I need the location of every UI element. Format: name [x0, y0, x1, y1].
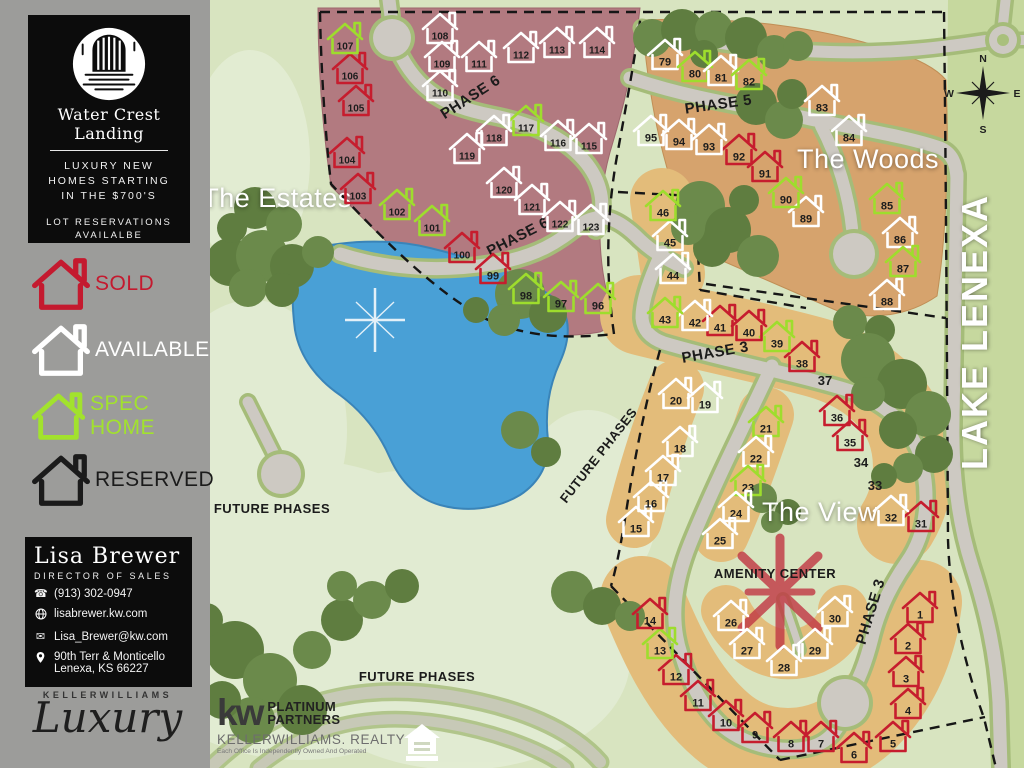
tagline-line: IN THE $700'S — [28, 189, 190, 204]
kw-luxury-script: Luxury — [15, 696, 200, 740]
svg-text:115: 115 — [581, 142, 598, 153]
road-label: FUTURE PHASES — [359, 669, 475, 684]
svg-text:112: 112 — [513, 51, 530, 62]
legend-house-icon-reserved — [30, 452, 92, 508]
info-sidebar: Water Crest Landing LUXURY NEW HOMES STA… — [0, 0, 210, 768]
legend-item-sold: SOLD — [30, 256, 154, 312]
compass-w: W — [944, 88, 954, 100]
legend-item-reserved: RESERVED — [30, 452, 214, 508]
svg-text:25: 25 — [714, 536, 726, 548]
kw-platinum-logo: kw PLATINUM PARTNERS KELLERWILLIAMS. REA… — [217, 696, 405, 755]
partners-line: PARTNERS — [267, 713, 340, 726]
svg-text:46: 46 — [657, 208, 669, 220]
svg-text:43: 43 — [659, 315, 671, 327]
kw-luxury-logo: KELLERWILLIAMS Luxury — [15, 690, 200, 740]
svg-text:113: 113 — [549, 46, 566, 57]
svg-text:80: 80 — [689, 69, 701, 81]
svg-text:104: 104 — [339, 156, 356, 167]
svg-text:99: 99 — [487, 271, 499, 283]
svg-text:9: 9 — [752, 730, 758, 742]
svg-text:122: 122 — [552, 220, 569, 231]
legend-item-available: AVAILABLE — [30, 322, 210, 378]
area-label: The Estates — [202, 183, 352, 213]
svg-text:8: 8 — [788, 739, 794, 751]
svg-text:13: 13 — [654, 646, 666, 658]
svg-text:114: 114 — [589, 46, 606, 57]
svg-text:111: 111 — [471, 60, 487, 71]
svg-text:36: 36 — [831, 413, 843, 425]
legend-label: SOLD — [95, 272, 154, 296]
svg-text:38: 38 — [796, 359, 808, 371]
svg-text:1: 1 — [917, 610, 923, 622]
lot-37: 37 — [818, 373, 832, 388]
svg-text:11: 11 — [692, 698, 704, 710]
svg-text:26: 26 — [725, 618, 737, 630]
compass-e: E — [1013, 88, 1020, 100]
roundabout — [985, 22, 1021, 58]
svg-text:14: 14 — [644, 616, 657, 628]
legend-item-spec: SPEC HOME — [30, 388, 210, 444]
agent-name: Lisa Brewer — [34, 544, 183, 569]
svg-text:123: 123 — [583, 223, 600, 234]
compass-s: S — [979, 124, 986, 136]
svg-text:102: 102 — [389, 208, 406, 219]
svg-text:21: 21 — [760, 424, 772, 436]
location-pin-icon — [34, 651, 47, 668]
phone-icon: ☎ — [34, 588, 47, 601]
svg-text:92: 92 — [733, 152, 745, 164]
agent-title: DIRECTOR OF SALES — [34, 571, 183, 581]
svg-text:20: 20 — [670, 396, 682, 408]
svg-text:10: 10 — [720, 718, 732, 730]
legend-house-icon-spec — [30, 388, 87, 444]
house-icon — [35, 327, 88, 374]
site-plan-flyer: N S W E PHASE 6PHASE 6PHASE 5PHASE 3PHAS… — [0, 0, 1024, 768]
svg-text:45: 45 — [664, 238, 676, 250]
svg-text:4: 4 — [905, 706, 912, 718]
email-icon: ✉ — [34, 631, 47, 644]
area-label: LAKE LENEXA — [954, 194, 995, 470]
svg-text:98: 98 — [520, 291, 532, 303]
svg-text:101: 101 — [424, 224, 441, 235]
waterfall-logo-icon — [70, 25, 148, 103]
reservations-line: LOT RESERVATIONS — [28, 216, 190, 229]
agent-website: lisabrewer.kw.com — [54, 608, 147, 620]
svg-text:97: 97 — [555, 299, 567, 311]
svg-text:108: 108 — [432, 32, 449, 43]
svg-text:105: 105 — [348, 104, 365, 115]
lot-34: 34 — [854, 455, 869, 470]
tagline-line: LUXURY NEW — [28, 159, 190, 174]
svg-text:17: 17 — [657, 473, 669, 485]
svg-text:103: 103 — [350, 192, 367, 203]
svg-text:100: 100 — [454, 251, 471, 262]
road-label: AMENITY CENTER — [714, 566, 836, 581]
svg-text:39: 39 — [771, 339, 783, 351]
svg-text:120: 120 — [496, 186, 513, 197]
svg-text:109: 109 — [434, 60, 451, 71]
agent-panel: Lisa Brewer DIRECTOR OF SALES ☎ (913) 30… — [25, 537, 192, 687]
tagline-line: HOMES STARTING — [28, 174, 190, 189]
svg-text:12: 12 — [670, 672, 682, 684]
lot-33: 33 — [868, 478, 882, 493]
svg-text:32: 32 — [885, 513, 897, 525]
road-label: FUTURE PHASES — [214, 501, 330, 516]
svg-text:30: 30 — [829, 614, 841, 626]
svg-text:41: 41 — [714, 323, 726, 335]
svg-text:82: 82 — [743, 77, 755, 89]
legend-house-icon-sold — [30, 256, 92, 312]
legend-label: AVAILABLE — [95, 338, 210, 362]
brand-panel: Water Crest Landing LUXURY NEW HOMES STA… — [28, 15, 190, 243]
svg-text:93: 93 — [703, 142, 715, 154]
svg-text:121: 121 — [524, 203, 541, 214]
area-label: The View — [762, 497, 878, 527]
svg-text:86: 86 — [894, 235, 906, 247]
svg-text:2: 2 — [905, 641, 911, 653]
svg-text:83: 83 — [816, 103, 828, 115]
svg-text:7: 7 — [818, 739, 824, 751]
area-label: The Woods — [797, 144, 939, 174]
divider — [50, 150, 168, 151]
agent-address: 90th Terr & Monticello Lenexa, KS 66227 — [54, 651, 165, 675]
svg-text:16: 16 — [645, 499, 657, 511]
svg-text:110: 110 — [432, 89, 449, 100]
kw-mark: kw — [217, 696, 262, 730]
svg-text:95: 95 — [645, 133, 657, 145]
svg-text:42: 42 — [689, 318, 701, 330]
svg-text:31: 31 — [915, 519, 927, 531]
legend-label: RESERVED — [95, 468, 214, 492]
svg-text:81: 81 — [715, 73, 727, 85]
svg-text:88: 88 — [881, 297, 893, 309]
kw-disclaimer: Each Office Is Independently Owned And O… — [217, 748, 405, 755]
svg-text:6: 6 — [851, 750, 857, 762]
svg-text:19: 19 — [699, 400, 711, 412]
svg-text:79: 79 — [659, 57, 671, 69]
svg-text:96: 96 — [592, 301, 604, 313]
svg-text:119: 119 — [459, 152, 476, 163]
svg-text:44: 44 — [667, 271, 680, 283]
svg-text:18: 18 — [674, 444, 686, 456]
svg-text:91: 91 — [759, 169, 771, 181]
legend-label: SPEC HOME — [90, 392, 210, 440]
svg-text:94: 94 — [673, 137, 686, 149]
svg-text:116: 116 — [550, 139, 567, 150]
legend-house-icon-available — [30, 322, 92, 378]
svg-text:5: 5 — [890, 739, 896, 751]
svg-text:15: 15 — [630, 524, 642, 536]
svg-text:35: 35 — [844, 438, 856, 450]
svg-text:107: 107 — [337, 42, 354, 53]
svg-text:89: 89 — [800, 214, 812, 226]
globe-icon — [34, 608, 47, 624]
svg-text:40: 40 — [743, 328, 755, 340]
svg-text:85: 85 — [881, 201, 893, 213]
svg-text:28: 28 — [778, 663, 790, 675]
reservations-line: AVAILALBE — [28, 229, 190, 242]
house-icon — [35, 261, 88, 308]
kw-realty-line: KELLERWILLIAMS. REALTY — [217, 732, 405, 747]
svg-text:87: 87 — [897, 264, 909, 276]
svg-text:84: 84 — [843, 133, 856, 145]
house-icon — [34, 395, 82, 438]
house-icon — [35, 457, 88, 504]
community-name: Water Crest Landing — [28, 105, 190, 143]
svg-text:3: 3 — [903, 674, 909, 686]
svg-text:27: 27 — [741, 646, 753, 658]
svg-text:117: 117 — [518, 124, 535, 135]
agent-email: Lisa_Brewer@kw.com — [54, 631, 168, 643]
svg-text:118: 118 — [486, 134, 503, 145]
svg-text:90: 90 — [780, 195, 792, 207]
compass-n: N — [979, 53, 987, 65]
agent-phone: (913) 302-0947 — [54, 588, 133, 600]
svg-text:106: 106 — [342, 72, 359, 83]
svg-text:29: 29 — [809, 646, 821, 658]
